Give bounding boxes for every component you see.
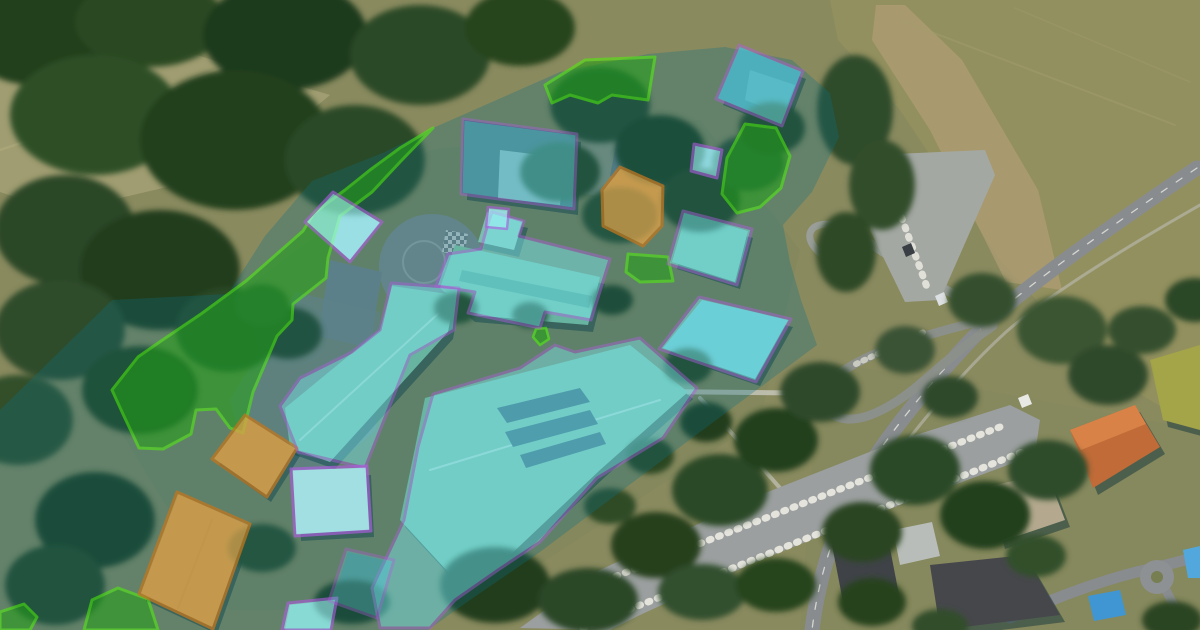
tree-canopy [780,362,860,422]
tree-canopy [538,568,638,630]
tree-canopy [940,481,1030,549]
aerial-map-card [0,0,1200,630]
building-footprint-kiosk[interactable] [486,207,509,229]
tree-canopy [1008,440,1088,500]
map-layers [0,0,1200,630]
tree-canopy [816,212,876,292]
roundabout-island [1151,571,1163,583]
tree-canopy [1068,345,1148,405]
tree-canopy [1108,306,1176,354]
tree-canopy [1006,535,1066,577]
tree-canopy [922,376,978,418]
tree-canopy [838,578,906,626]
tree-canopy [822,502,902,562]
building-footprint-southwest-flat[interactable] [291,466,371,536]
satellite-map [0,0,1200,630]
tree-canopy [736,558,816,612]
building-footprint-hall[interactable] [461,119,577,209]
vegetation-zone-northeast-patch[interactable] [626,254,673,282]
tree-canopy [870,435,960,505]
tree-canopy [875,326,935,374]
tree-canopy [948,273,1016,327]
building-footprint-ramp[interactable] [691,144,722,178]
tree-canopy [658,564,746,620]
building-footprint-south-annex[interactable] [282,598,337,630]
